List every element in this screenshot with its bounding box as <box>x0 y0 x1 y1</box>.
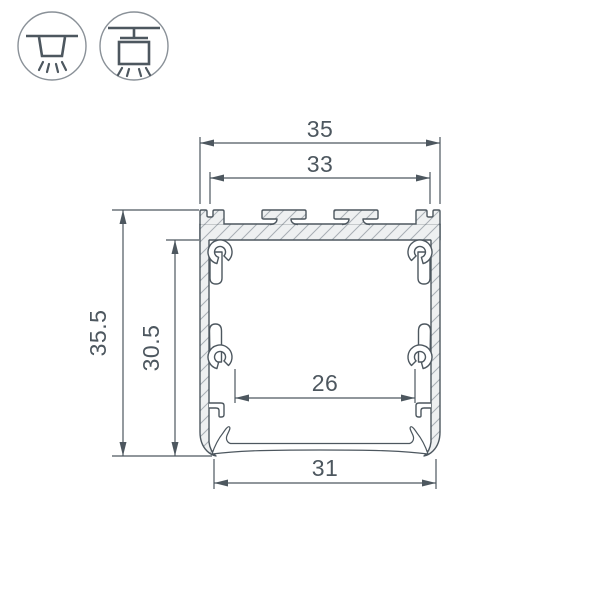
dim-slot-width: 33 <box>210 151 430 204</box>
suspension-stem <box>120 28 148 38</box>
right-top-lip <box>416 210 440 225</box>
suspended-luminaire-icon <box>100 12 168 80</box>
dimensions: 35 33 35.5 30.5 26 <box>85 116 440 489</box>
lamp-body <box>119 42 149 64</box>
dim-inner-width: 26 <box>235 369 415 403</box>
left-top-lip <box>200 210 224 225</box>
light-rays <box>39 62 66 72</box>
diffuser <box>212 427 428 454</box>
dim-label-inner-height: 30.5 <box>138 325 164 372</box>
lower-ledge <box>209 403 224 417</box>
light-rays <box>118 68 150 76</box>
dim-label-outer-height: 35.5 <box>85 310 111 357</box>
dim-label-outer-width: 35 <box>307 116 334 142</box>
dim-inner-height: 30.5 <box>138 240 199 456</box>
dim-label-inner-width: 26 <box>312 370 339 396</box>
profile-cross-section <box>200 210 440 456</box>
profile-drawing-page: 35 33 35.5 30.5 26 <box>0 0 600 600</box>
top-plate <box>200 224 440 240</box>
mounting-icons <box>18 12 168 80</box>
t-slot-right <box>334 210 378 225</box>
drawing-canvas: 35 33 35.5 30.5 26 <box>0 0 600 600</box>
dim-label-slot-width: 33 <box>307 151 334 177</box>
surface-mounted-luminaire-icon <box>18 12 86 80</box>
t-slot-left <box>262 210 306 225</box>
right-wall-details <box>408 240 432 417</box>
left-wall-details <box>208 240 232 417</box>
dim-label-bottom-width: 31 <box>312 455 339 481</box>
icon-circle <box>100 12 168 80</box>
lower-ledge <box>416 403 431 417</box>
lamp-body <box>39 37 65 56</box>
dim-bottom-width: 31 <box>214 455 436 489</box>
icon-circle <box>18 12 86 80</box>
